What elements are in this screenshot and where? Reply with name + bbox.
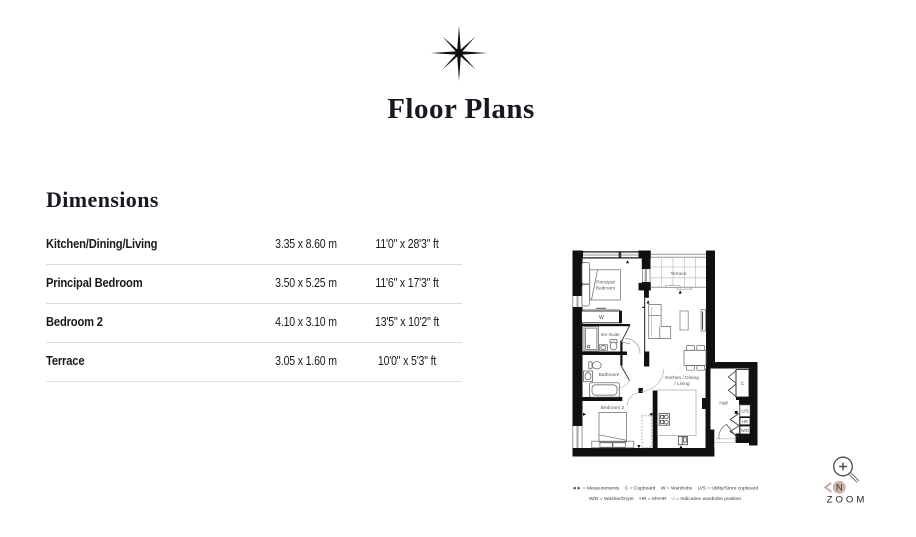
svg-text:Bathroom: Bathroom xyxy=(599,372,620,378)
svg-text:W/D = Washer/Dryer HR = MVH: W/D = Washer/Dryer HR = MVHR □ = Indicat… xyxy=(589,496,741,502)
svg-text:/ Living: / Living xyxy=(674,381,690,387)
svg-text:Bedroom 2: Bedroom 2 xyxy=(601,405,625,411)
svg-text:U/S: U/S xyxy=(741,409,748,414)
svg-text:C: C xyxy=(741,381,745,387)
svg-text:W: W xyxy=(599,315,604,321)
svg-text:Hall: Hall xyxy=(719,400,727,406)
svg-text:Terrace: Terrace xyxy=(671,271,687,277)
svg-text:W/D: W/D xyxy=(741,428,749,433)
svg-text:N: N xyxy=(836,483,843,493)
svg-text:Bedroom: Bedroom xyxy=(596,286,615,292)
svg-text:ZOOM: ZOOM xyxy=(827,495,868,506)
svg-text:En-Suite: En-Suite xyxy=(601,332,620,338)
svg-text:Principal: Principal xyxy=(596,279,614,285)
svg-text:Kitchen / Dining: Kitchen / Dining xyxy=(665,375,699,381)
svg-text:◄► = Measurements C = Cupbo: ◄► = Measurements C = Cupboard W = Wardr… xyxy=(572,486,759,492)
svg-text:HR: HR xyxy=(742,419,748,424)
